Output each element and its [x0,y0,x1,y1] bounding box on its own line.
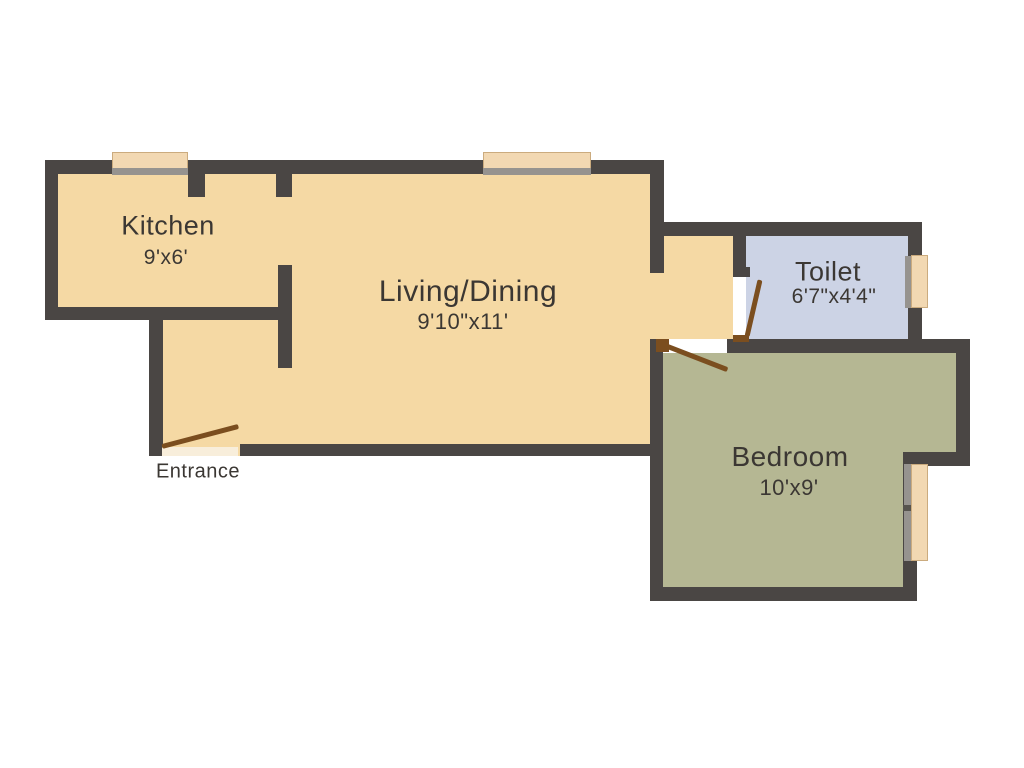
bedroom-right-wall-upper [956,339,970,466]
kitchen-bottom-wall [45,307,292,320]
bedroom-left-wall [650,339,663,601]
bedroom-floor-upper [663,353,956,453]
kitchen-window-frame [112,168,188,175]
floor-plan: Kitchen 9'x6' Living/Dining 9'10"x11' To… [0,0,1024,768]
kitchen-dims: 9'x6' [144,246,188,270]
toilet-bedroom-shared-wall [727,339,970,353]
living-dining-label: Living/Dining [379,275,557,309]
bedroom-window [911,464,928,561]
bedroom-label: Bedroom [731,441,848,473]
bedroom-dims: 10'x9' [759,475,818,501]
toilet-top-wall [663,222,922,236]
toilet-dims: 6'7"x4'4" [792,285,877,309]
entrance-threshold [162,447,238,456]
kitchen-top-wall-stub [188,174,205,197]
bottom-exterior-wall [240,444,663,456]
bedroom-bottom-wall [650,587,917,601]
toilet-door-jamb [733,267,750,277]
living-dining-dims: 9'10"x11' [417,309,508,335]
hall-living-floor [149,320,663,456]
kitchen-label: Kitchen [121,211,215,242]
kitchen-right-wall-upper-stub [276,174,292,197]
toilet-window [911,255,928,308]
kitchen-right-wall-lower [278,265,292,368]
kitchen-left-exterior-wall [45,160,58,320]
lobby-floor [663,236,733,339]
entrance-label: Entrance [156,461,240,484]
toilet-label: Toilet [795,257,861,288]
living-window-frame [483,168,591,175]
entrance-left-wall [149,320,163,456]
living-right-wall [650,160,664,273]
